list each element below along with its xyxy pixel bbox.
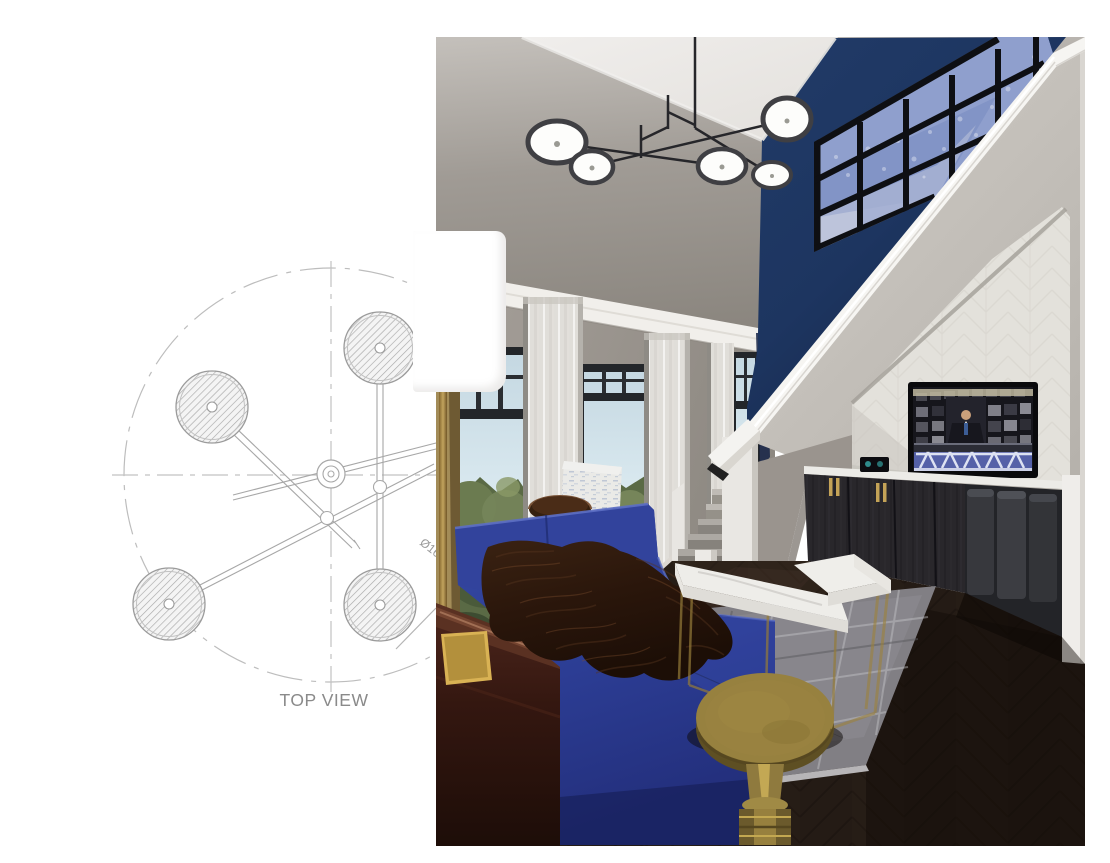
svg-text:TOP VIEW: TOP VIEW (280, 690, 369, 710)
